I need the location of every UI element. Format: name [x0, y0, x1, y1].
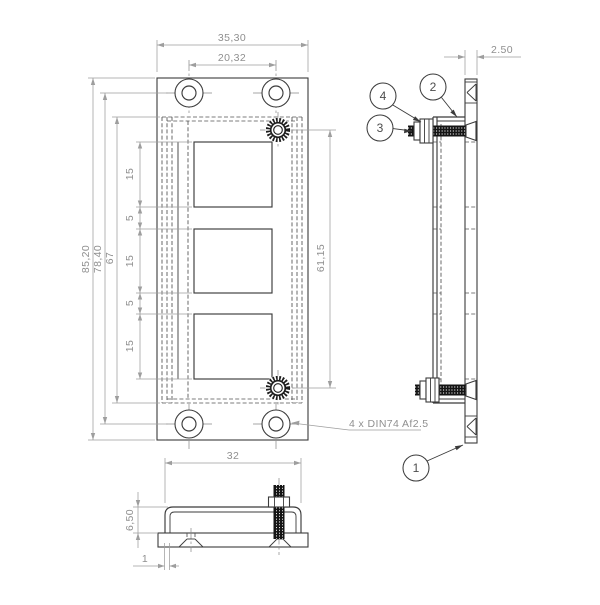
balloon-3: 3: [367, 115, 412, 141]
leader-arrow: [450, 110, 457, 117]
bottom-view: 32 6,50 1: [124, 450, 308, 570]
dim-overall-width: 35,30: [218, 32, 246, 44]
hole-note: 4 x DIN74 Af2.5: [291, 418, 429, 430]
nut: [426, 378, 439, 402]
dim-stud-spacing: 61,15: [315, 244, 327, 272]
dim-segment-3: 15: [124, 255, 136, 267]
dim-arrow: [115, 396, 119, 403]
dim-arrow: [138, 373, 142, 380]
balloon-number: 2: [430, 80, 437, 94]
balloon-number: 4: [380, 89, 387, 103]
hole-note-text: 4 x DIN74 Af2.5: [349, 418, 429, 430]
engineering-drawing: 35,30 20,32 85,20 78,40 67: [0, 0, 600, 600]
hole-countersink: [175, 410, 203, 438]
dim-arrow: [91, 78, 95, 85]
dim-segment-1: 15: [124, 168, 136, 180]
front-view: [157, 60, 308, 449]
thickness-dimension: 2.50: [444, 44, 521, 75]
stud-head: [466, 122, 476, 141]
dim-arrow: [91, 433, 95, 440]
dim-arrow: [157, 43, 164, 47]
dim-arrow: [165, 461, 172, 465]
hole-countersink: [262, 410, 290, 438]
balloon-2: 2: [420, 74, 457, 117]
dim-segment-5: 15: [124, 340, 136, 352]
dim-arrow: [170, 564, 177, 568]
dim-arrow: [103, 93, 107, 100]
dim-arrow: [138, 207, 142, 214]
dim-arrow: [138, 308, 142, 315]
dim-bracket-length: 67: [104, 252, 116, 264]
hole-countersink: [262, 79, 290, 107]
nut: [420, 119, 433, 143]
dim-hole-spacing-v: 78,40: [92, 245, 104, 273]
dim-segment-2: 5: [124, 215, 136, 221]
dim-arrow: [328, 130, 332, 137]
side-view: 2.50 2 4 3 1: [367, 44, 521, 481]
balloon-1: 1: [403, 445, 463, 481]
dim-arrow: [269, 63, 276, 67]
dim-arrow: [301, 43, 308, 47]
dim-wall-thickness: 1: [142, 553, 148, 565]
bracket-profile: [433, 117, 465, 403]
washer: [414, 122, 420, 140]
dim-arrow: [138, 201, 142, 208]
dim-bottom-height: 6,50: [124, 509, 136, 531]
dim-arrow: [103, 417, 107, 424]
dim-thickness: 2.50: [491, 44, 513, 56]
dim-arrow: [138, 229, 142, 236]
dim-arrow: [158, 564, 165, 568]
balloon-number: 1: [413, 461, 420, 475]
washer: [420, 381, 426, 399]
leader-arrow: [455, 445, 463, 450]
dim-arrow: [477, 55, 484, 59]
dim-arrow: [138, 287, 142, 294]
hole-countersink: [175, 79, 203, 107]
dim-arrow: [138, 314, 142, 321]
nut: [269, 497, 290, 507]
dim-arrow: [115, 117, 119, 124]
balloon-number: 3: [377, 121, 384, 135]
dim-arrow: [136, 500, 140, 507]
dim-arrow: [458, 55, 465, 59]
dim-overall-height: 85,20: [80, 245, 92, 273]
dim-arrow: [328, 381, 332, 388]
dim-hole-spacing-h: 20,32: [218, 52, 246, 64]
dim-arrow: [136, 533, 140, 540]
dim-arrow: [189, 63, 196, 67]
dim-arrow: [138, 293, 142, 300]
dim-segment-4: 5: [124, 300, 136, 306]
dim-bottom-width: 32: [227, 450, 239, 462]
dim-arrow: [138, 142, 142, 149]
drawing-sheet: 35,30 20,32 85,20 78,40 67: [0, 0, 600, 600]
stud-head: [466, 381, 476, 400]
dim-arrow: [294, 461, 301, 465]
dim-arrow: [138, 223, 142, 230]
